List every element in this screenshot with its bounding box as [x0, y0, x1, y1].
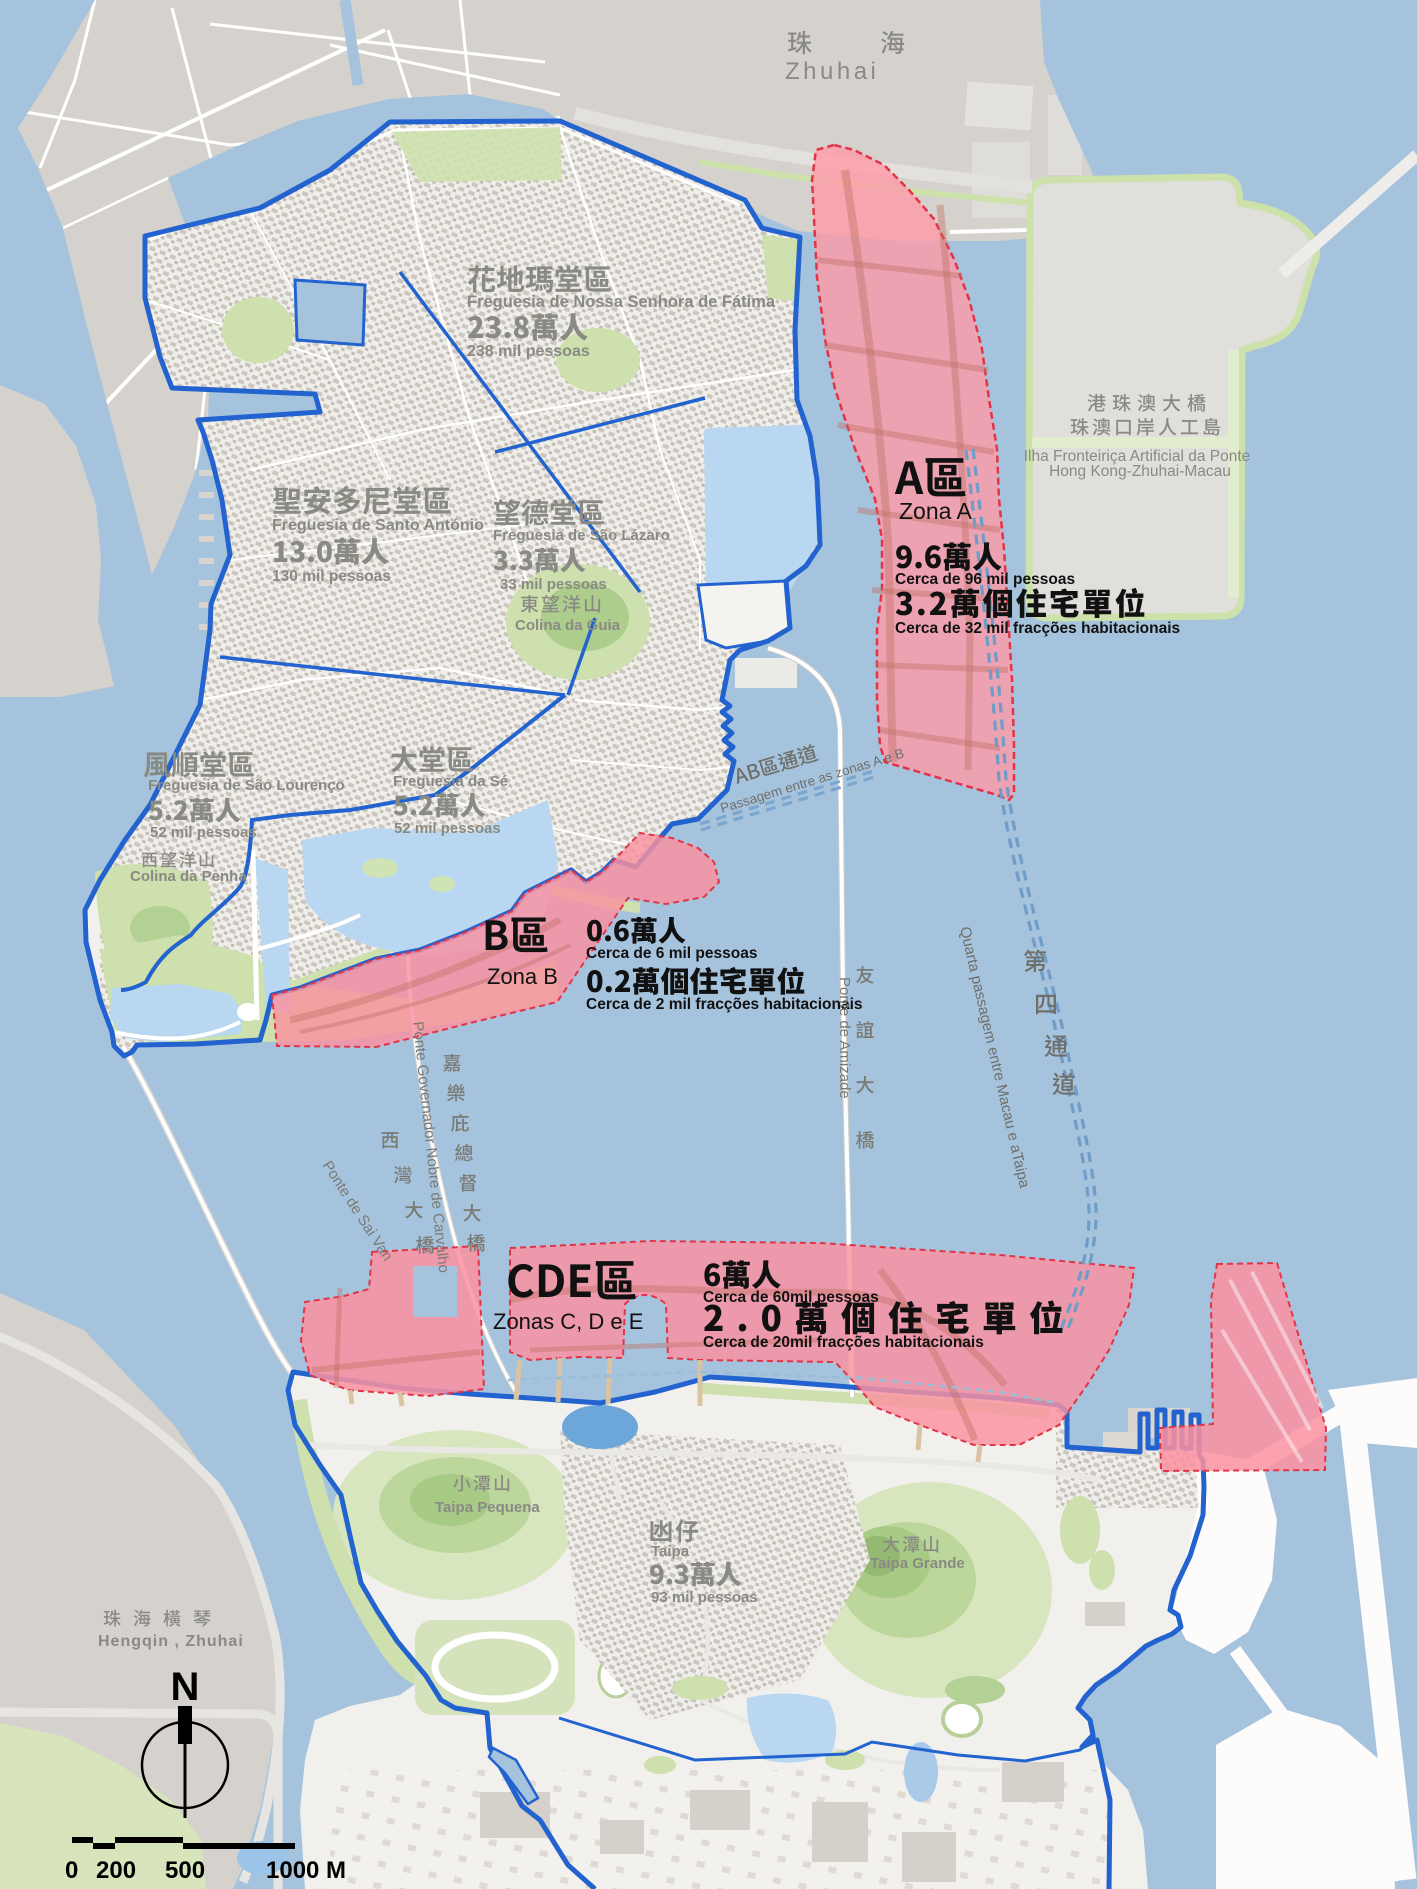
- svg-text:33 mil pessoas: 33 mil pessoas: [500, 576, 607, 593]
- svg-text:Freguesia de São Lourenço: Freguesia de São Lourenço: [148, 777, 345, 794]
- svg-text:Cerca de 96 mil pessoas: Cerca de 96 mil pessoas: [895, 571, 1075, 588]
- svg-text:52 mil pessoas: 52 mil pessoas: [150, 824, 257, 841]
- svg-text:Hong Kong-Zhuhai-Macau: Hong Kong-Zhuhai-Macau: [1049, 463, 1231, 480]
- svg-text:Cerca de 32 mil fracções habit: Cerca de 32 mil fracções habitacionais: [895, 620, 1180, 637]
- svg-text:Zona A: Zona A: [899, 498, 973, 524]
- svg-text:500: 500: [165, 1857, 205, 1884]
- svg-text:238 mil pessoas: 238 mil pessoas: [467, 343, 590, 360]
- svg-text:Cerca de 2 mil fracções habita: Cerca de 2 mil fracções habitacionais: [586, 996, 863, 1013]
- svg-text:Cerca de 60mil pessoas: Cerca de 60mil pessoas: [703, 1289, 879, 1306]
- svg-text:130 mil pessoas: 130 mil pessoas: [272, 568, 391, 585]
- svg-text:1000 M: 1000 M: [266, 1857, 346, 1884]
- svg-text:Hengqin , Zhuhai: Hengqin , Zhuhai: [98, 1633, 244, 1650]
- svg-text:200: 200: [96, 1857, 136, 1884]
- svg-text:Taipa Grande: Taipa Grande: [870, 1555, 965, 1572]
- svg-text:93 mil pessoas: 93 mil pessoas: [651, 1589, 758, 1606]
- svg-text:Colina da Penha: Colina da Penha: [130, 868, 247, 885]
- svg-text:0: 0: [65, 1857, 78, 1884]
- svg-text:Freguesia da Sé: Freguesia da Sé: [393, 773, 508, 790]
- svg-text:Ponte de Amizade: Ponte de Amizade: [836, 977, 853, 1099]
- svg-text:52 mil pessoas: 52 mil pessoas: [394, 820, 501, 837]
- svg-text:N: N: [171, 1665, 200, 1709]
- svg-text:Freguesia de Santo António: Freguesia de Santo António: [272, 517, 484, 534]
- svg-text:Cerca de 20mil fracções habita: Cerca de 20mil fracções habitacionais: [703, 1334, 984, 1351]
- svg-text:Freguesia de São Lázaro: Freguesia de São Lázaro: [493, 527, 670, 544]
- svg-text:Zhuhai: Zhuhai: [785, 58, 879, 85]
- svg-text:Cerca de 6 mil pessoas: Cerca de 6 mil pessoas: [586, 945, 757, 962]
- svg-text:Colina da Guia: Colina da Guia: [515, 617, 621, 634]
- svg-text:Taipa: Taipa: [651, 1543, 690, 1560]
- svg-text:Taipa Pequena: Taipa Pequena: [435, 1499, 540, 1516]
- svg-text:Freguesia de Nossa Senhora de: Freguesia de Nossa Senhora de Fátima: [467, 293, 776, 311]
- svg-text:Zonas C, D e E: Zonas C, D e E: [493, 1309, 643, 1334]
- svg-text:Zona B: Zona B: [487, 964, 558, 989]
